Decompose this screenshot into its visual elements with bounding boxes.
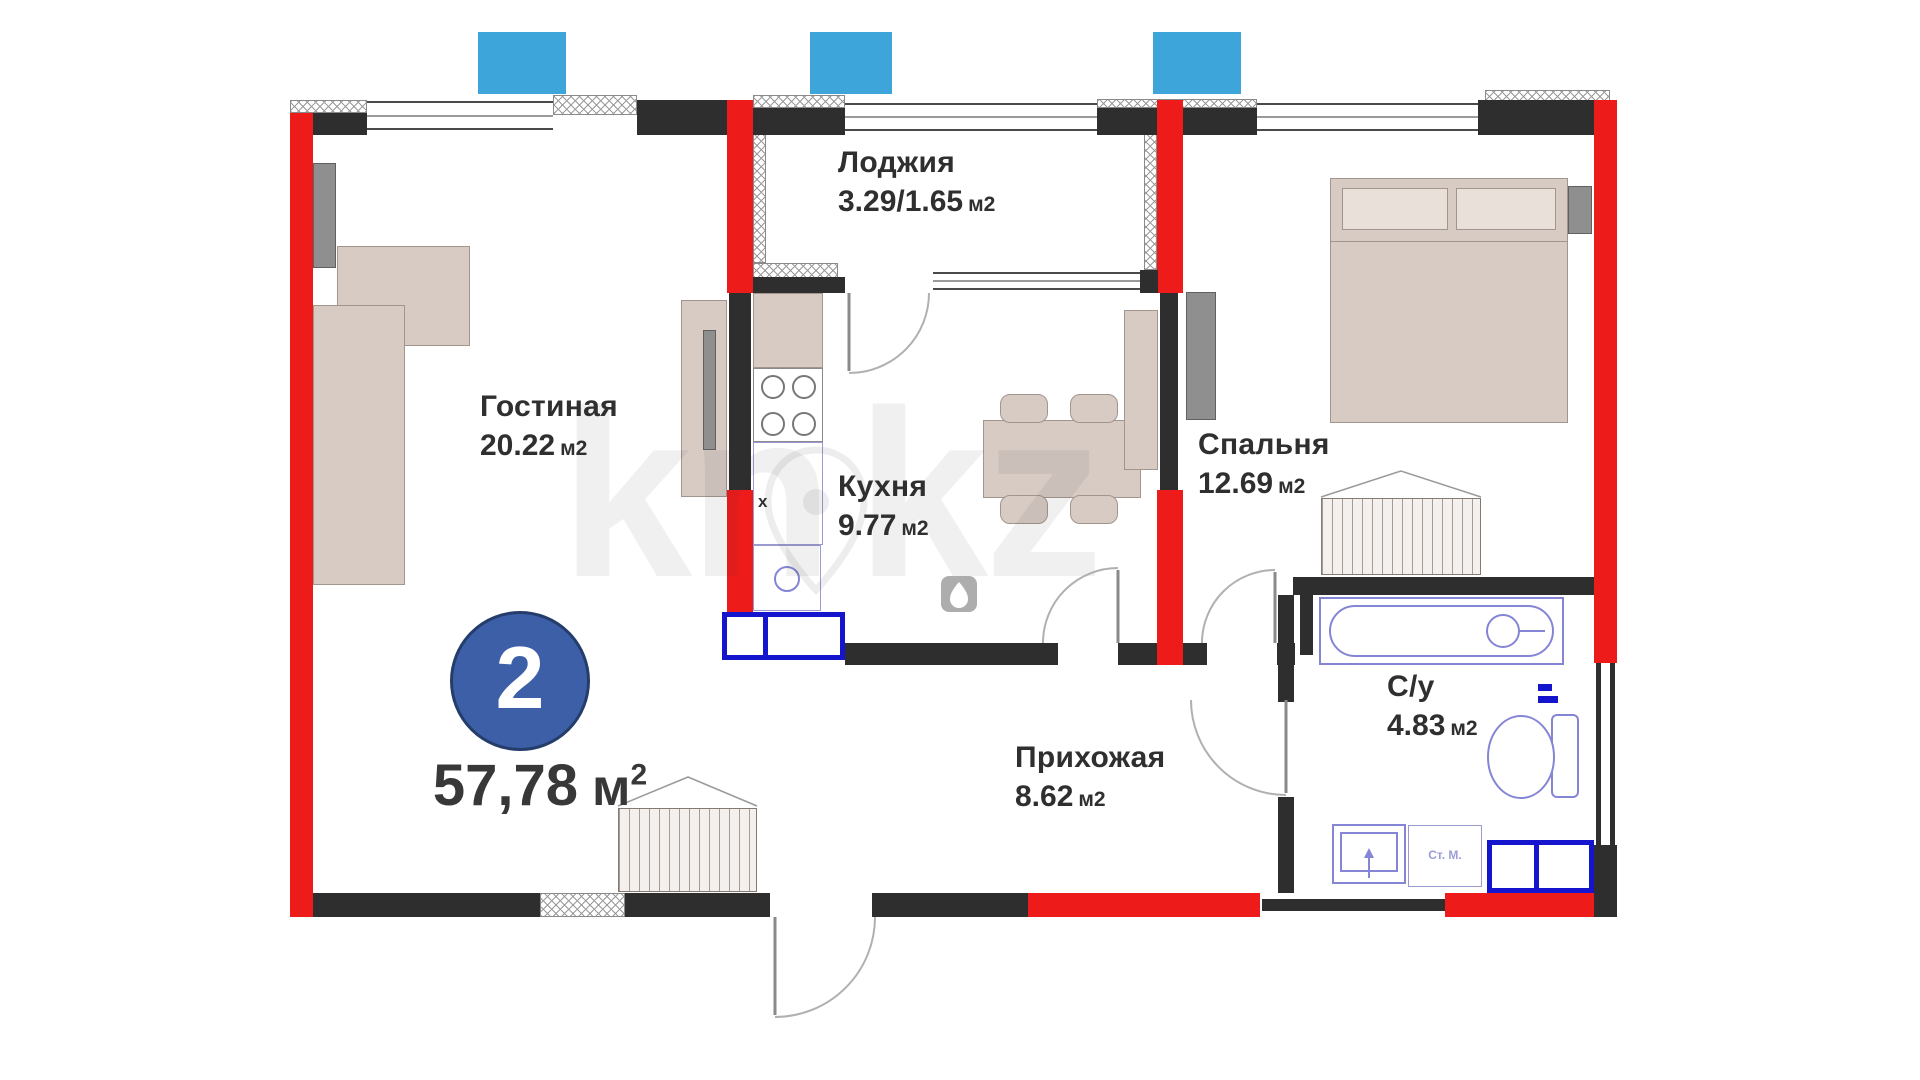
towel-radiator-icon — [1538, 684, 1558, 703]
area-value: 20.22 — [480, 429, 555, 462]
room-label-hallway: Прихожая 8.62м2 — [1015, 741, 1165, 814]
towel-mark — [1538, 684, 1552, 691]
floorplan-canvas: kn kz — [0, 0, 1920, 1080]
loggia-door-arc — [849, 293, 929, 373]
toilet — [1488, 715, 1578, 798]
bathtub — [1320, 598, 1563, 664]
room-count-badge: 2 — [450, 611, 590, 751]
bedroom-door-arc — [1202, 570, 1275, 643]
wardrobe-roofline — [1321, 471, 1481, 497]
kitchen-door-arc — [1043, 568, 1118, 643]
room-area: 3.29/1.65м2 — [838, 185, 995, 219]
room-name: Прихожая — [1015, 741, 1165, 775]
room-label-kitchen: Кухня 9.77м2 — [838, 470, 929, 543]
area-unit: м2 — [1278, 475, 1305, 498]
area-unit: м2 — [1450, 717, 1477, 740]
bathroom-door-arc — [1191, 700, 1286, 795]
room-name: Кухня — [838, 470, 929, 504]
area-value: 12.69 — [1198, 467, 1273, 500]
area-unit: м2 — [560, 437, 587, 460]
total-area-unit: м — [592, 759, 630, 817]
door-arcs — [775, 293, 1286, 1017]
total-area: 57,78м2 — [395, 752, 685, 819]
area-value: 4.83 — [1387, 709, 1445, 742]
toilet-bowl — [1488, 716, 1554, 798]
vent-marker: x — [758, 492, 767, 512]
room-name: Лоджия — [838, 146, 995, 180]
area-value: 8.62 — [1015, 780, 1073, 813]
room-label-living: Гостиная 20.22м2 — [480, 390, 618, 463]
room-area: 12.69м2 — [1198, 467, 1330, 501]
area-unit: м2 — [901, 517, 928, 540]
room-name: Гостиная — [480, 390, 618, 424]
bathroom-sink — [1333, 825, 1405, 883]
room-area: 8.62м2 — [1015, 780, 1165, 814]
towel-mark — [1538, 696, 1558, 703]
room-name: Спальня — [1198, 428, 1330, 462]
room-area: 4.83м2 — [1387, 709, 1478, 743]
room-name: С/у — [1387, 670, 1478, 704]
room-label-bathroom: С/у 4.83м2 — [1387, 670, 1478, 743]
area-unit: м2 — [968, 193, 995, 216]
room-area: 9.77м2 — [838, 509, 929, 543]
room-label-loggia: Лоджия 3.29/1.65м2 — [838, 146, 995, 219]
total-area-value: 57,78 — [433, 753, 578, 818]
area-value: 9.77 — [838, 509, 896, 542]
room-area: 20.22м2 — [480, 429, 618, 463]
entrance-door-arc — [775, 917, 875, 1017]
pin-dot — [803, 489, 829, 515]
area-unit: м2 — [1078, 788, 1105, 811]
room-label-bedroom: Спальня 12.69м2 — [1198, 428, 1330, 501]
area-value: 3.29/1.65 — [838, 185, 963, 218]
toilet-tank — [1552, 715, 1578, 797]
total-area-sup: 2 — [630, 759, 647, 792]
door-leaves — [775, 293, 1286, 1015]
